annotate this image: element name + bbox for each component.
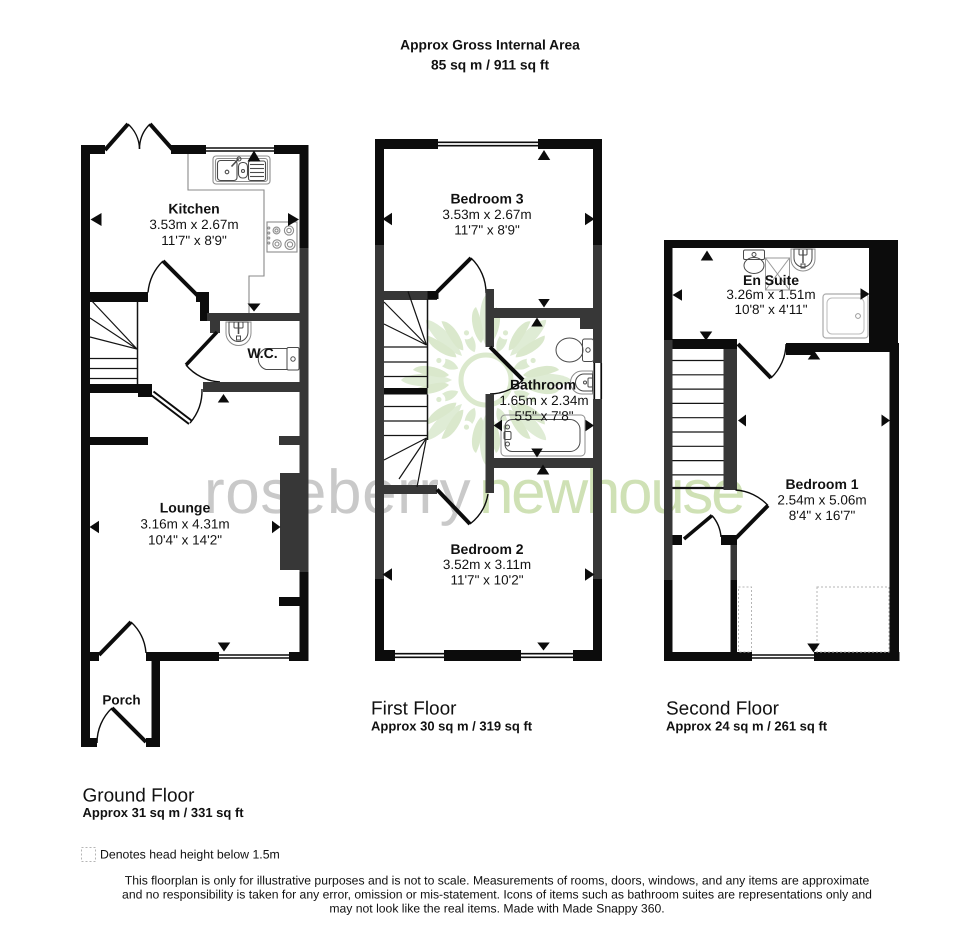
svg-text:10'4" x 14'2": 10'4" x 14'2" [148,533,222,548]
svg-text:may not look like the real ite: may not look like the real items. Made w… [329,902,664,916]
svg-text:Approx 31 sq m / 331 sq ft: Approx 31 sq m / 331 sq ft [83,805,245,820]
svg-text:3.53m x 2.67m: 3.53m x 2.67m [442,207,531,222]
svg-text:Approx 30 sq m / 319 sq ft: Approx 30 sq m / 319 sq ft [371,719,533,734]
svg-text:Bathroom: Bathroom [510,377,576,393]
svg-text:En Suite: En Suite [743,272,799,288]
svg-text:11'7" x 8'9": 11'7" x 8'9" [454,223,520,238]
svg-text:3.53m x 2.67m: 3.53m x 2.67m [149,217,238,232]
svg-text:3.26m x 1.51m: 3.26m x 1.51m [726,287,815,302]
svg-text:and no responsibility is taken: and no responsibility is taken for any e… [122,888,872,902]
svg-text:This floorplan is only for ill: This floorplan is only for illustrative … [125,874,870,888]
svg-text:3.52m x 3.11m: 3.52m x 3.11m [443,557,531,572]
svg-text:Ground Floor: Ground Floor [83,786,196,807]
svg-text:11'7" x 8'9": 11'7" x 8'9" [161,233,227,248]
svg-text:Kitchen: Kitchen [168,201,219,217]
svg-text:5'5" x 7'8": 5'5" x 7'8" [514,409,573,424]
svg-text:Approx Gross Internal Area: Approx Gross Internal Area [400,38,580,53]
svg-text:3.16m x 4.31m: 3.16m x 4.31m [140,517,229,532]
svg-text:Lounge: Lounge [160,500,211,516]
svg-text:W.C.: W.C. [247,345,277,361]
svg-text:10'8" x 4'11": 10'8" x 4'11" [734,302,807,317]
svg-text:Approx 24 sq m / 261 sq ft: Approx 24 sq m / 261 sq ft [666,719,828,734]
svg-text:Bedroom 2: Bedroom 2 [450,541,523,557]
svg-text:8'4" x 16'7": 8'4" x 16'7" [789,508,856,523]
svg-text:Porch: Porch [102,693,140,708]
svg-text:Bedroom 1: Bedroom 1 [785,476,858,492]
svg-text:Bedroom 3: Bedroom 3 [450,191,523,207]
svg-text:1.65m x 2.34m: 1.65m x 2.34m [499,393,588,408]
svg-text:11'7" x 10'2": 11'7" x 10'2" [450,573,523,588]
svg-text:First Floor: First Floor [371,699,457,720]
svg-text:Second Floor: Second Floor [666,699,780,720]
svg-text:85 sq m / 911 sq ft: 85 sq m / 911 sq ft [431,58,550,73]
svg-text:Denotes head height below 1.5m: Denotes head height below 1.5m [100,848,280,862]
svg-text:newhouse: newhouse [479,458,743,527]
svg-text:2.54m x 5.06m: 2.54m x 5.06m [777,493,866,508]
